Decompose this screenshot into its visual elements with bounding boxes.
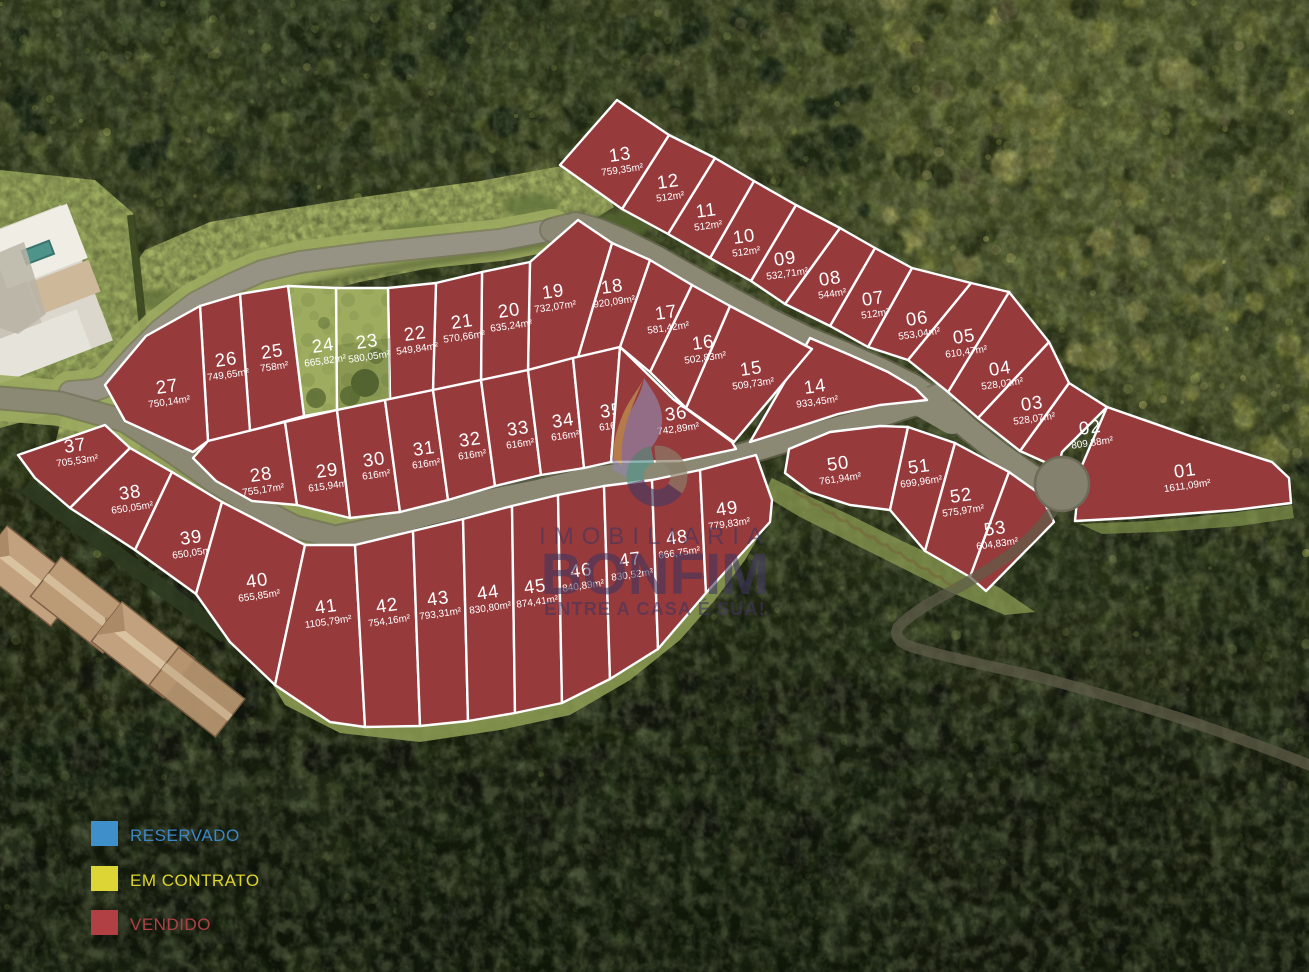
svg-text:10: 10 <box>732 224 757 248</box>
svg-text:01: 01 <box>1173 458 1198 482</box>
svg-text:21: 21 <box>450 309 475 333</box>
svg-text:42: 42 <box>375 593 400 617</box>
svg-text:19: 19 <box>541 279 566 303</box>
svg-text:20: 20 <box>497 298 522 322</box>
svg-text:25: 25 <box>260 339 285 363</box>
svg-text:41: 41 <box>314 594 339 618</box>
svg-text:31: 31 <box>412 436 437 460</box>
svg-text:49: 49 <box>715 496 740 520</box>
svg-text:02: 02 <box>1078 415 1103 439</box>
svg-text:RESERVADO: RESERVADO <box>130 826 240 845</box>
svg-text:17: 17 <box>654 300 679 324</box>
svg-text:03: 03 <box>1020 391 1045 415</box>
svg-text:VENDIDO: VENDIDO <box>130 915 211 934</box>
svg-text:18: 18 <box>600 274 625 298</box>
svg-text:26: 26 <box>214 347 239 371</box>
svg-text:28: 28 <box>249 462 274 486</box>
svg-text:32: 32 <box>458 427 483 451</box>
svg-text:40: 40 <box>245 568 270 592</box>
svg-text:53: 53 <box>983 516 1008 540</box>
svg-text:51: 51 <box>907 454 932 478</box>
svg-text:30: 30 <box>362 447 387 471</box>
svg-text:05: 05 <box>952 324 977 348</box>
svg-text:33: 33 <box>506 416 531 440</box>
svg-text:34: 34 <box>551 408 576 432</box>
svg-text:BONFIM: BONFIM <box>541 542 770 607</box>
svg-text:06: 06 <box>905 306 930 330</box>
svg-text:38: 38 <box>118 480 143 504</box>
svg-text:27: 27 <box>155 374 180 398</box>
svg-text:11: 11 <box>694 198 718 222</box>
svg-text:14: 14 <box>803 374 828 398</box>
svg-text:44: 44 <box>476 580 501 604</box>
svg-text:22: 22 <box>403 321 428 345</box>
svg-text:16: 16 <box>691 330 716 354</box>
svg-text:13: 13 <box>608 142 633 166</box>
svg-text:07: 07 <box>861 286 886 310</box>
svg-text:29: 29 <box>315 458 340 482</box>
svg-text:EM CONTRATO: EM CONTRATO <box>130 871 260 890</box>
svg-text:09: 09 <box>773 246 798 270</box>
svg-text:08: 08 <box>818 266 843 290</box>
svg-text:23: 23 <box>355 329 380 353</box>
svg-text:04: 04 <box>988 356 1013 380</box>
svg-text:36: 36 <box>664 401 689 425</box>
svg-text:52: 52 <box>949 483 974 507</box>
svg-text:37: 37 <box>63 433 88 457</box>
svg-text:39: 39 <box>179 525 204 549</box>
svg-text:15: 15 <box>739 356 764 380</box>
svg-text:43: 43 <box>426 586 451 610</box>
svg-text:24: 24 <box>311 333 336 357</box>
svg-text:50: 50 <box>826 451 851 475</box>
svg-text:ENTRE A CASA É SUA!: ENTRE A CASA É SUA! <box>544 598 766 619</box>
svg-text:12: 12 <box>656 169 681 193</box>
